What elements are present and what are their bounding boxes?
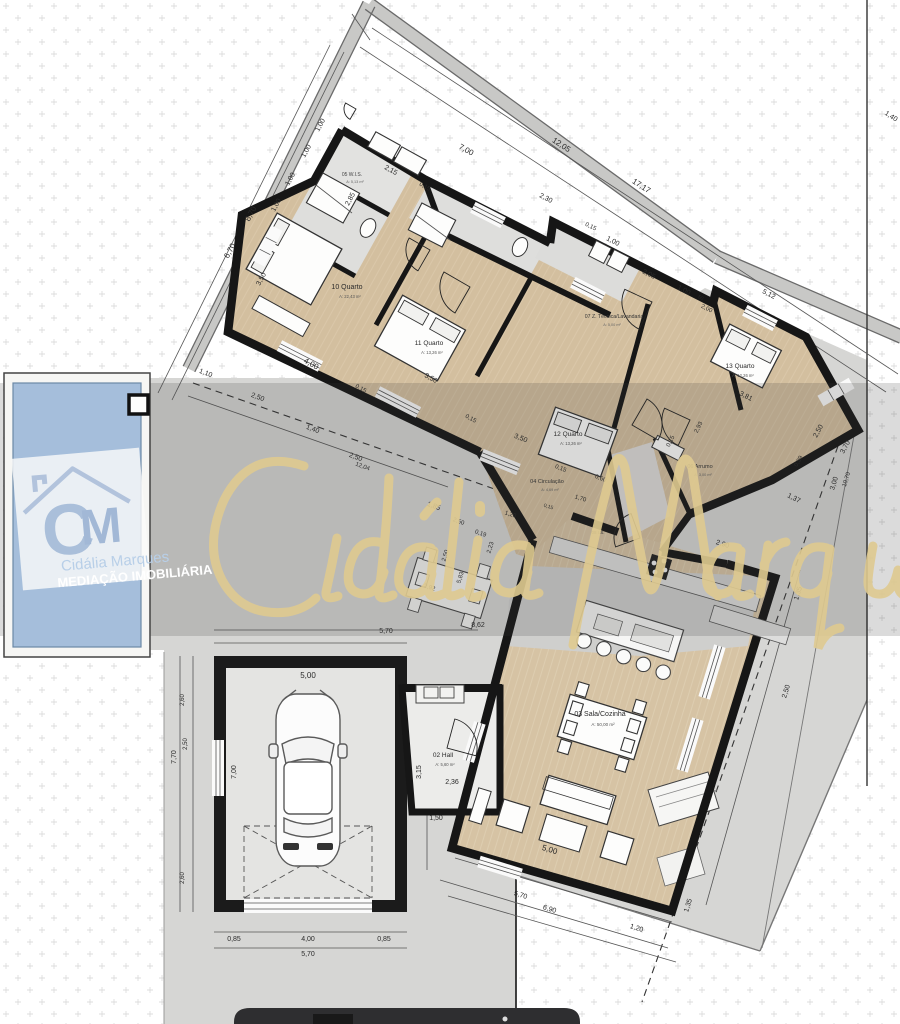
svg-text:10 Quarto: 10 Quarto [331,284,362,291]
svg-text:07 Z. Técnica/Lavandaria: 07 Z. Técnica/Lavandaria [585,314,644,320]
svg-text:A: 5,00 m²: A: 5,00 m² [603,323,621,327]
svg-text:A: 50,00 m²: A: 50,00 m² [591,722,615,727]
svg-text:1,50: 1,50 [429,815,443,822]
svg-text:11 Quarto: 11 Quarto [415,340,444,347]
svg-text:2,50: 2,50 [183,738,189,750]
svg-text:A: 22,43 m²: A: 22,43 m² [339,294,361,299]
svg-text:7,70: 7,70 [171,750,178,764]
svg-text:A: 5,13 m²: A: 5,13 m² [346,180,364,184]
svg-text:4,00: 4,00 [301,936,315,943]
svg-text:3,15: 3,15 [416,765,423,779]
svg-text:5,00: 5,00 [300,671,316,680]
svg-text:7,00: 7,00 [231,765,238,779]
svg-text:05 W.I.S.: 05 W.I.S. [342,172,362,178]
svg-text:A: 13,26 m²: A: 13,26 m² [421,350,443,355]
svg-text:M: M [78,497,124,556]
svg-text:03 Sala/Cozinha: 03 Sala/Cozinha [574,711,625,718]
svg-text:0,85: 0,85 [377,936,391,943]
svg-text:A: 5,60 m²: A: 5,60 m² [435,762,455,767]
svg-text:0,85: 0,85 [227,936,241,943]
svg-text:5,70: 5,70 [301,951,315,958]
svg-text:2,60: 2,60 [180,872,186,884]
svg-text:02 Hall: 02 Hall [433,752,454,759]
svg-text:13 Quarto: 13 Quarto [726,363,755,370]
svg-text:2,60: 2,60 [180,694,186,706]
svg-text:2,36: 2,36 [445,779,459,786]
svg-text:A: 12,26 m²: A: 12,26 m² [732,373,754,378]
